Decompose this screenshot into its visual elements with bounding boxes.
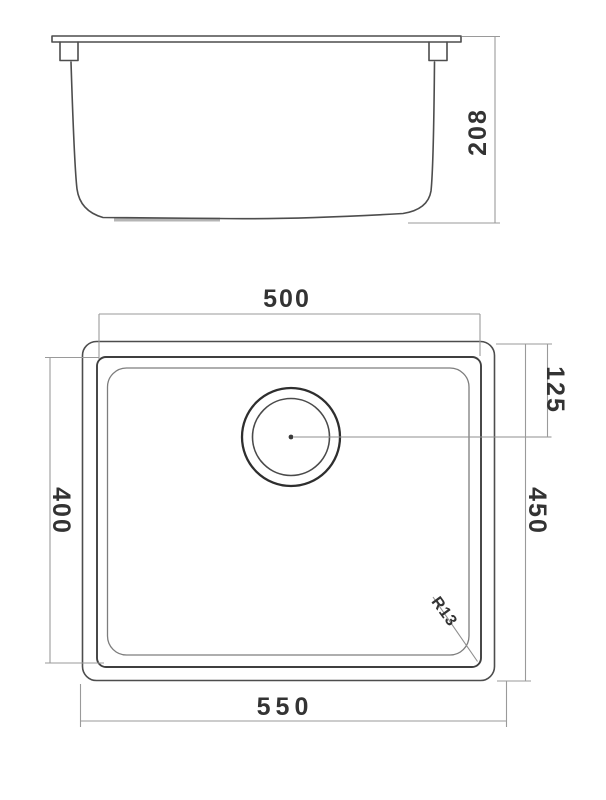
sink-bowl-profile [71,62,435,219]
mounting-clip-right [429,42,447,61]
dim-bowl-width: 500 [99,285,480,359]
dim-label-height: 208 [464,108,492,156]
dim-label-corner-radius: R13 [428,594,461,630]
dim-overall-width: 550 [81,681,507,727]
side-view: 208 [52,36,500,223]
sink-rim-profile [52,36,461,42]
sink-drawing-svg: 208 500 [0,0,606,800]
dim-drain-offset: 125 [541,344,569,437]
bowl-rim-edge [97,357,481,667]
dim-height: 208 [408,37,500,224]
dim-label-overall-width: 550 [257,693,314,721]
drain-center-point [289,435,294,440]
dim-label-bowl-depth: 400 [47,487,75,535]
sink-outer-edge [83,342,495,681]
mounting-clip-left [60,42,78,61]
dim-label-overall-depth: 450 [523,487,551,535]
dim-label-drain-offset: 125 [541,366,569,414]
bowl-bottom-edge [108,368,470,655]
dim-label-bowl-width: 500 [263,285,311,313]
technical-drawing-canvas: 208 500 [0,0,606,800]
dim-corner-radius: R13 [428,594,478,662]
plan-view: 500 400 450 125 [45,285,569,727]
dim-bowl-depth: 400 [45,358,104,664]
